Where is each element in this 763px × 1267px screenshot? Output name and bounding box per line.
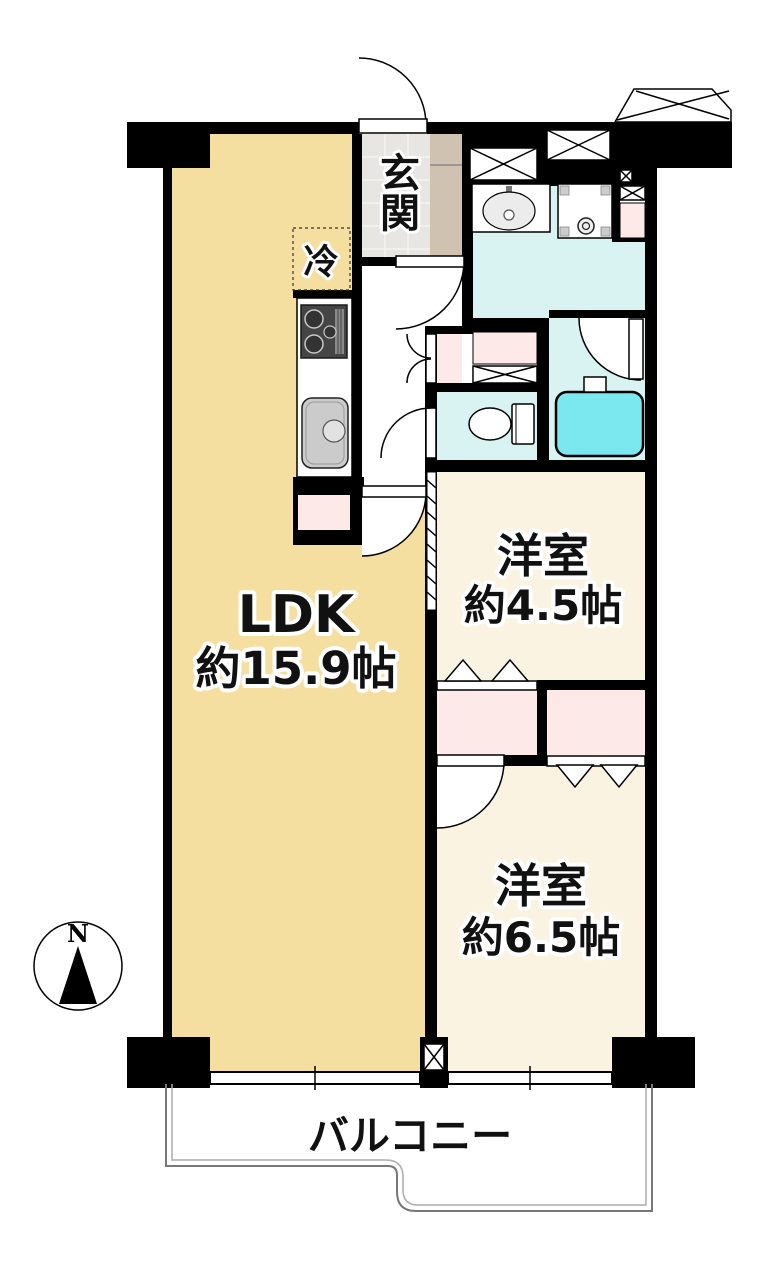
- north-label: N: [67, 919, 89, 948]
- toilet-fixture: [469, 404, 534, 444]
- pillar-bottom-right: [612, 1037, 695, 1088]
- hall-closet: [437, 334, 462, 384]
- wall-washroom-door-stub-l: [362, 257, 396, 266]
- washroom-door: [396, 256, 464, 329]
- wall-washroom-door-stub-r: [464, 257, 473, 266]
- shoe-cabinet: [430, 134, 462, 257]
- wall-toilet-bath: [537, 318, 549, 472]
- upper-closet-2: [547, 130, 610, 160]
- kitchen-stove: [301, 305, 347, 358]
- upper-closet-1: [470, 148, 537, 180]
- washroom-nook: [620, 203, 645, 238]
- closet-small-room: [437, 690, 537, 755]
- kitchen-sink: [302, 398, 348, 468]
- side-closet: [620, 186, 645, 200]
- bathtub: [556, 392, 643, 456]
- wall-closet-left-stub: [425, 680, 437, 690]
- room-small-name-label: 洋室: [497, 529, 589, 583]
- bottom-shaft: [424, 1044, 444, 1070]
- closet-large-room: [547, 690, 645, 755]
- wall-counter-bottom: [293, 477, 364, 495]
- partition-track: [427, 472, 436, 610]
- fridge-label: 冷: [303, 243, 338, 283]
- entrance-door: [359, 58, 427, 133]
- pipe-space-icon: [620, 170, 632, 182]
- ldk-name-label: LDK: [238, 585, 356, 645]
- kitchen-cabinet: [298, 495, 350, 530]
- wall-cabinet-left: [293, 495, 298, 530]
- wall-hall-closet-top: [425, 326, 473, 334]
- washroom-shelf: [473, 332, 537, 364]
- room-small-area-label: 約4.5帖: [464, 581, 622, 630]
- room-large-area-label: 約6.5帖: [462, 913, 620, 962]
- floor-plan: N LDK 約15.9帖 洋室 約4.5帖 洋室 約6.5帖 玄関 冷 バルコニ…: [0, 0, 763, 1267]
- wall-left: [163, 134, 172, 1088]
- hall-closet-doors: [407, 334, 436, 383]
- wall-toilet-top: [425, 383, 549, 392]
- wall-washer-east: [612, 168, 620, 242]
- ldk-area-label: 約15.9帖: [195, 642, 396, 695]
- wall-nook-bottom: [620, 238, 645, 242]
- wall-right: [645, 168, 657, 1088]
- wall-room-small-top: [425, 460, 657, 472]
- wall-closet-mid: [537, 680, 547, 766]
- wall-bath-washroom: [549, 310, 645, 318]
- washroom-floor-east: [612, 242, 645, 318]
- balcony-label: バルコニー: [308, 1112, 512, 1160]
- pillar-bottom-left: [127, 1037, 210, 1088]
- washbasin: [472, 184, 550, 232]
- wall-top-mid: [427, 122, 462, 134]
- washroom-counter-hatch: [473, 366, 537, 383]
- bath-step: [584, 377, 606, 392]
- wall-top-west: [163, 122, 359, 134]
- wall-closet-right-top: [547, 680, 657, 690]
- exterior-duct-bay: [615, 89, 731, 122]
- room-large-name-label: 洋室: [495, 859, 587, 913]
- wall-cabinet-right: [350, 495, 364, 545]
- washing-machine-pan: [558, 184, 612, 238]
- toilet-door: [381, 408, 436, 458]
- wall-top-east-ext: [655, 122, 732, 168]
- wall-kitchen: [352, 134, 362, 495]
- wall-fridge-counter: [293, 290, 352, 298]
- compass: N: [34, 919, 122, 1010]
- entrance-label: 玄関: [373, 152, 419, 232]
